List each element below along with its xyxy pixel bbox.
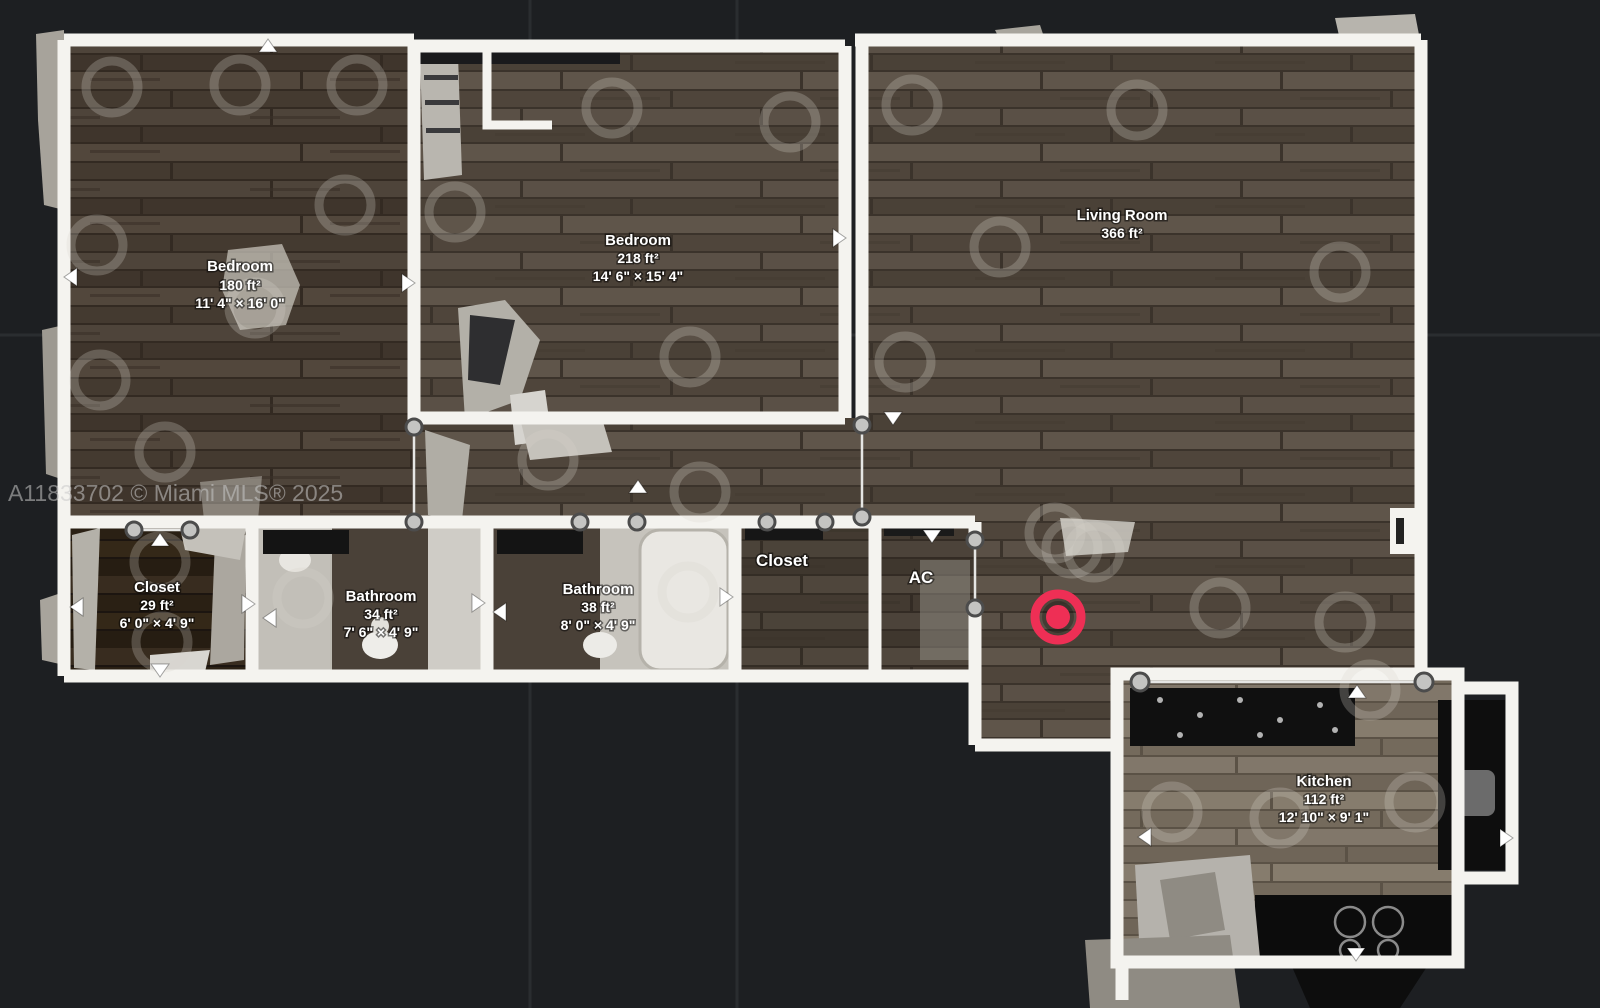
wall-node-handle[interactable]	[1415, 673, 1433, 691]
room-name: Closet	[756, 551, 808, 570]
room-name: Bathroom	[346, 588, 417, 605]
room-area: 34 ft²	[364, 606, 398, 622]
room-area: 180 ft²	[219, 277, 261, 293]
room-area: 366 ft²	[1101, 225, 1143, 241]
mls-watermark: A11833702 © Miami MLS® 2025	[8, 480, 343, 506]
room-label-closet-2: Closet	[756, 551, 808, 570]
room-dims: 11' 4" × 16' 0"	[195, 295, 285, 311]
wall-node-handle[interactable]	[817, 514, 833, 530]
wall-node-handle[interactable]	[406, 514, 422, 530]
wall-node-handle[interactable]	[629, 514, 645, 530]
room-dims: 14' 6" × 15' 4"	[593, 268, 683, 284]
wall-node-handle[interactable]	[759, 514, 775, 530]
room-name: Bedroom	[207, 258, 273, 275]
room-name: Bedroom	[605, 232, 671, 249]
room-name: Kitchen	[1296, 773, 1351, 790]
wall-node-handle[interactable]	[1131, 673, 1149, 691]
room-dims: 8' 0" × 4' 9"	[561, 617, 636, 633]
doorway-bathroom-1	[263, 530, 349, 554]
floor-plan: Bedroom 180 ft² 11' 4" × 16' 0" Bedroom …	[0, 0, 1600, 1008]
room-label-ac: AC	[909, 568, 934, 587]
wall-node-handle[interactable]	[126, 522, 142, 538]
wall-node-handle[interactable]	[967, 600, 983, 616]
room-name: Bathroom	[563, 581, 634, 598]
kitchen-counter-top	[1130, 688, 1355, 746]
floor-plan-viewer: Bedroom 180 ft² 11' 4" × 16' 0" Bedroom …	[0, 0, 1600, 1008]
room-dims: 6' 0" × 4' 9"	[120, 615, 195, 631]
wall-node-handle[interactable]	[406, 419, 422, 435]
wall-node-handle[interactable]	[182, 522, 198, 538]
wall-node-handle[interactable]	[967, 532, 983, 548]
room-area: 218 ft²	[617, 250, 659, 266]
doorway-bathroom-2	[497, 530, 583, 554]
room-dims: 7' 6" × 4' 9"	[344, 624, 419, 640]
wall-node-handle[interactable]	[854, 509, 870, 525]
room-name: Living Room	[1077, 207, 1168, 224]
room-name: AC	[909, 568, 934, 587]
room-name: Closet	[134, 579, 180, 596]
room-dims: 12' 10" × 9' 1"	[1279, 809, 1369, 825]
room-area: 38 ft²	[581, 599, 615, 615]
wall-node-handle[interactable]	[572, 514, 588, 530]
room-area: 29 ft²	[140, 597, 174, 613]
room-area: 112 ft²	[1304, 791, 1345, 807]
wall-node-handle[interactable]	[854, 417, 870, 433]
